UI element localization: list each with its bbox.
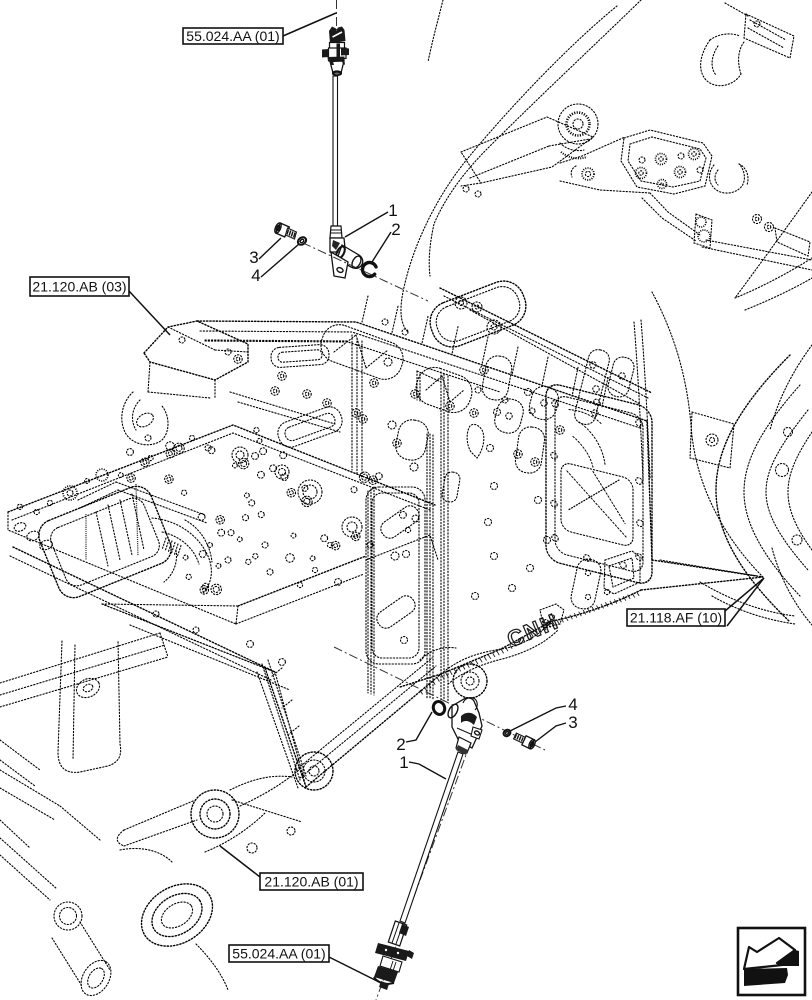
svg-text:3: 3: [568, 713, 577, 732]
svg-text:55.024.AA (01): 55.024.AA (01): [232, 946, 325, 962]
svg-text:2: 2: [396, 735, 405, 754]
svg-text:3: 3: [249, 248, 258, 267]
svg-text:2: 2: [391, 220, 400, 239]
svg-text:21.120.AB (01): 21.120.AB (01): [264, 874, 358, 890]
svg-text:1: 1: [399, 753, 408, 772]
svg-text:4: 4: [568, 695, 577, 714]
svg-text:4: 4: [251, 266, 260, 285]
svg-text:55.024.AA (01): 55.024.AA (01): [186, 28, 279, 44]
svg-text:1: 1: [388, 201, 397, 220]
svg-text:21.118.AF (10): 21.118.AF (10): [630, 610, 722, 626]
svg-text:21.120.AB (03): 21.120.AB (03): [32, 279, 126, 295]
